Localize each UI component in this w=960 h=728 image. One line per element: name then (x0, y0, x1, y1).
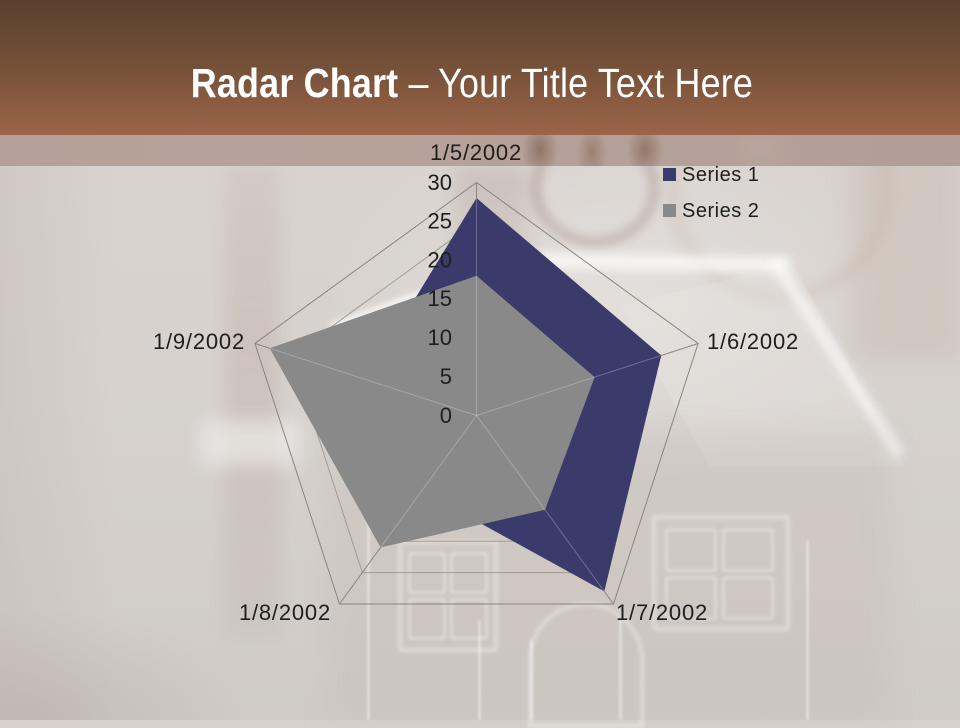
svg-text:1/9/2002: 1/9/2002 (153, 329, 245, 354)
svg-text:1/8/2002: 1/8/2002 (239, 600, 331, 625)
svg-text:15: 15 (428, 286, 452, 311)
svg-text:1/7/2002: 1/7/2002 (616, 600, 708, 625)
svg-text:Series 1: Series 1 (682, 164, 759, 186)
svg-text:10: 10 (428, 325, 452, 350)
svg-text:30: 30 (428, 170, 452, 195)
svg-text:1/6/2002: 1/6/2002 (707, 329, 799, 354)
svg-text:5: 5 (440, 364, 452, 389)
svg-text:0: 0 (440, 403, 452, 428)
svg-text:Series 2: Series 2 (682, 200, 759, 222)
svg-text:1/5/2002: 1/5/2002 (430, 140, 522, 165)
svg-text:25: 25 (428, 209, 452, 234)
svg-text:20: 20 (428, 248, 452, 273)
